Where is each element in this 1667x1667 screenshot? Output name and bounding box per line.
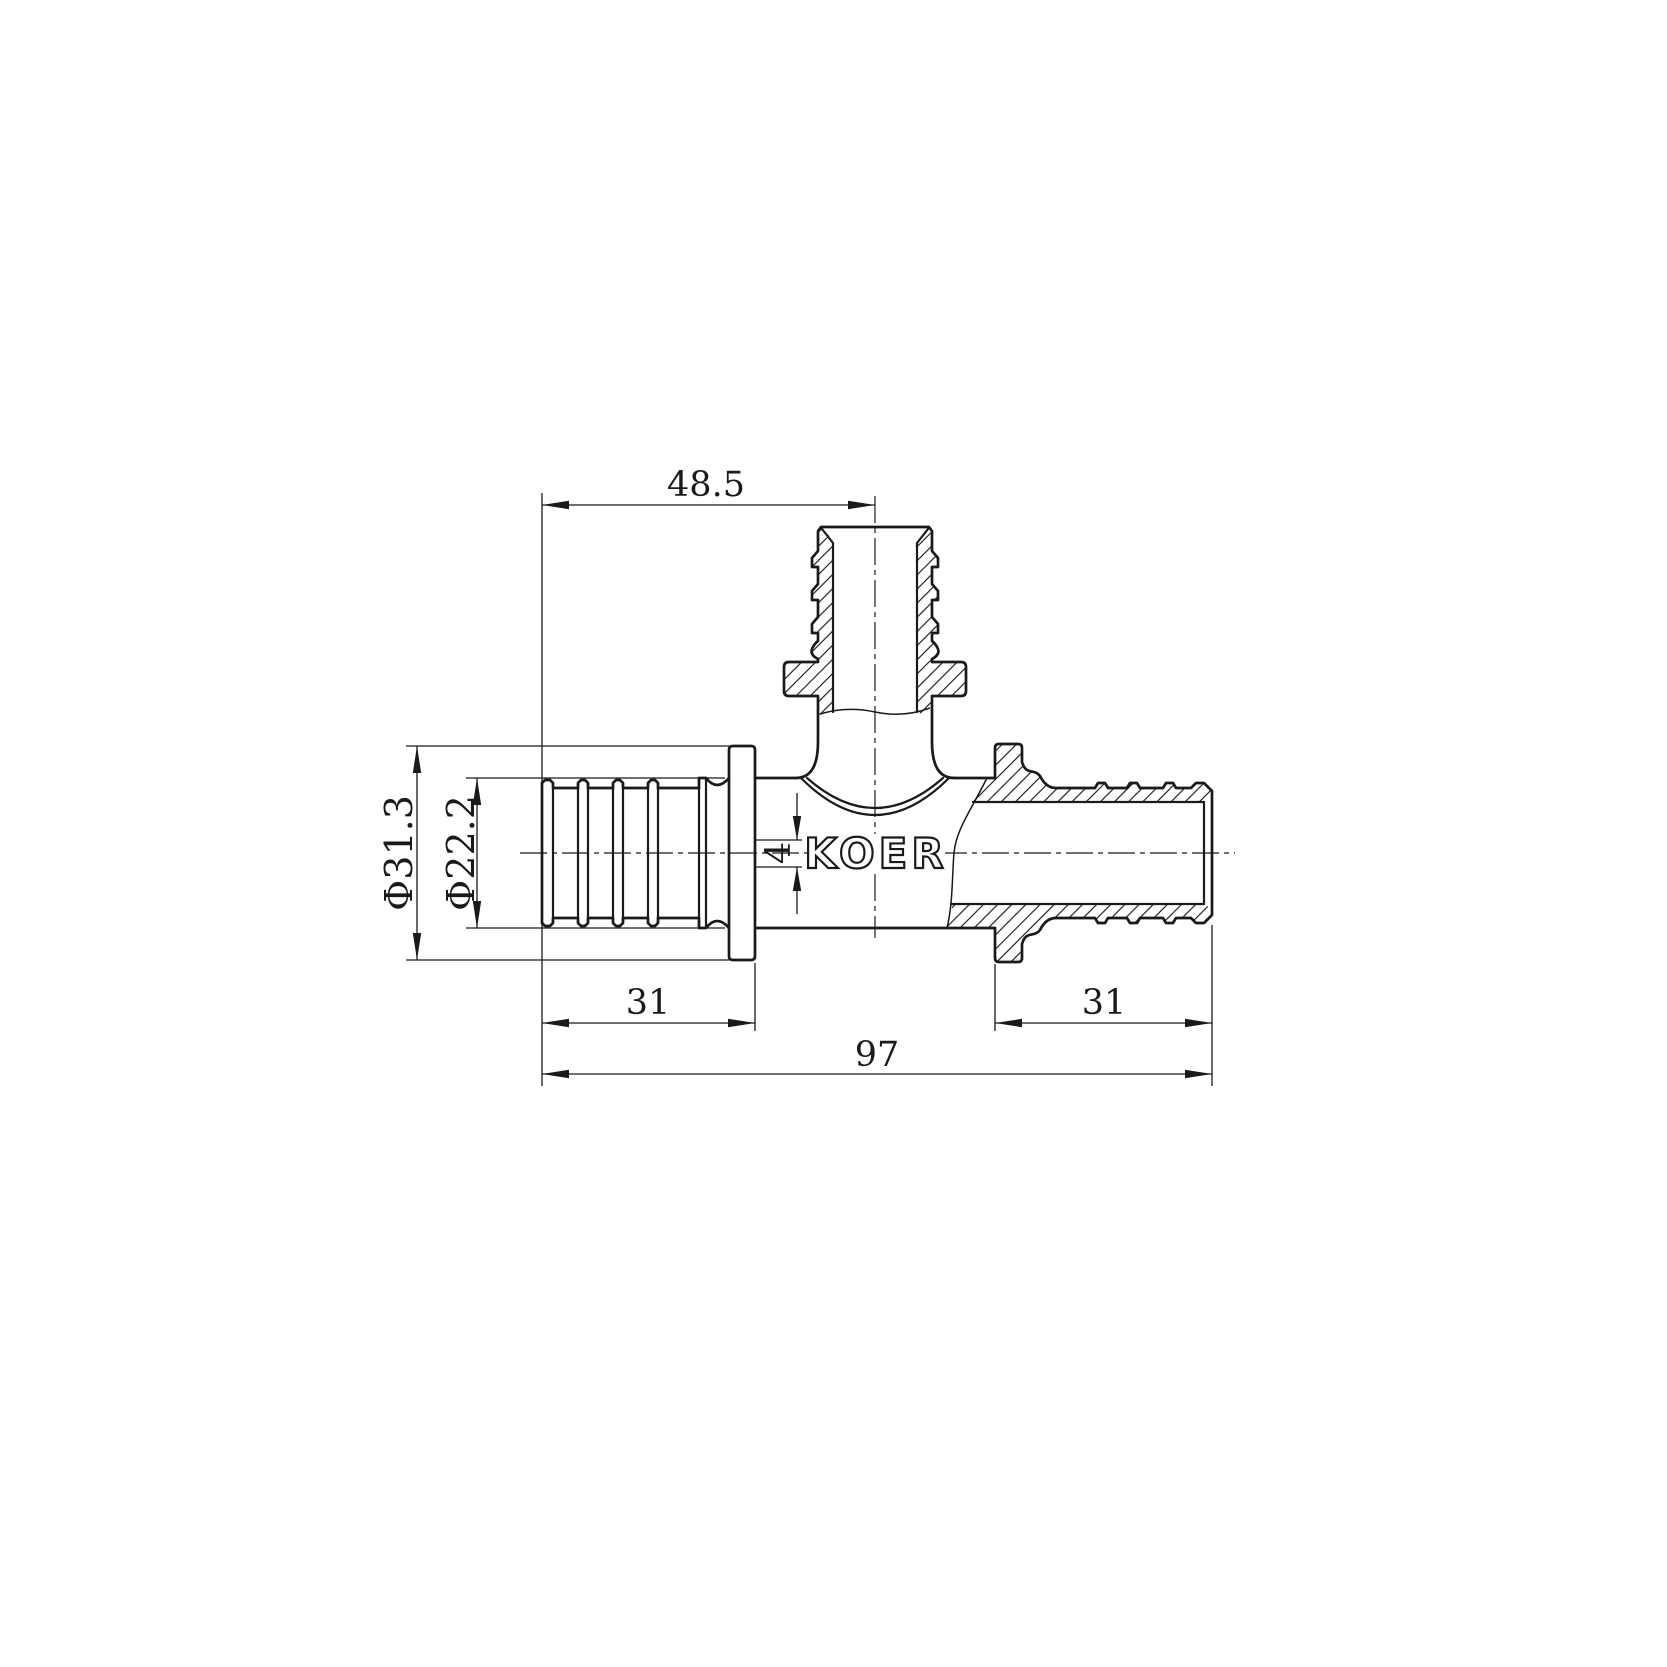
branch-right-wall-hatch: [917, 527, 966, 715]
right-port-bottom-wall-hatch: [947, 904, 1212, 962]
dimension-overall-length: 97: [542, 1035, 1212, 1078]
arrowhead-4-upper: [793, 816, 801, 840]
arrowhead-31-right-a: [995, 1019, 1022, 1027]
dim-label-31-right: 31: [1082, 983, 1127, 1023]
dimension-right-insert-length: 31: [995, 983, 1212, 1027]
brand-logo: KOER: [804, 829, 947, 878]
dim-label-dia-22-2: Φ22.2: [439, 795, 483, 911]
arrowhead-97-right: [1185, 1070, 1212, 1078]
arrowhead-48-5-right: [848, 501, 875, 509]
right-port-top-wall-hatch: [973, 744, 1212, 802]
dimension-outer-diameter-left: Φ31.3: [377, 746, 421, 960]
arrowhead-4-lower: [793, 867, 801, 891]
arrowhead-31-right-b: [1185, 1019, 1212, 1027]
arrowhead-31-left-b: [728, 1019, 755, 1027]
arrowhead-31-left-a: [542, 1019, 569, 1027]
branch-left-wall-hatch: [784, 527, 833, 715]
dimension-pipe-stop: 4: [759, 793, 801, 914]
arrowhead-dia-31-3-top: [413, 746, 421, 773]
dim-label-48-5: 48.5: [667, 465, 745, 505]
dim-label-dia-31-3: Φ31.3: [377, 795, 421, 911]
logo-koer: KOER: [804, 829, 947, 878]
dim-label-31-left: 31: [626, 983, 671, 1023]
arrowhead-dia-31-3-bottom: [413, 933, 421, 960]
dim-label-97: 97: [855, 1035, 900, 1075]
left-port-top-profile: [542, 778, 729, 788]
fitting-outline: [542, 527, 1212, 962]
dim-label-4: 4: [759, 842, 799, 864]
dimensions: 48.5 Φ31.3 Φ22.2 4: [377, 465, 1212, 1078]
drawing-canvas: 48.5 Φ31.3 Φ22.2 4: [0, 0, 1667, 1667]
arrowhead-97-left: [542, 1070, 569, 1078]
dimension-barb-diameter-left: Φ22.2: [439, 778, 483, 928]
dimension-branch-offset: 48.5: [542, 465, 875, 509]
pex-tee-technical-drawing: 48.5 Φ31.3 Φ22.2 4: [0, 0, 1667, 1667]
dimension-left-insert-length: 31: [542, 983, 755, 1027]
left-port-bottom-profile: [542, 918, 729, 928]
arrowhead-48-5-left: [542, 501, 569, 509]
